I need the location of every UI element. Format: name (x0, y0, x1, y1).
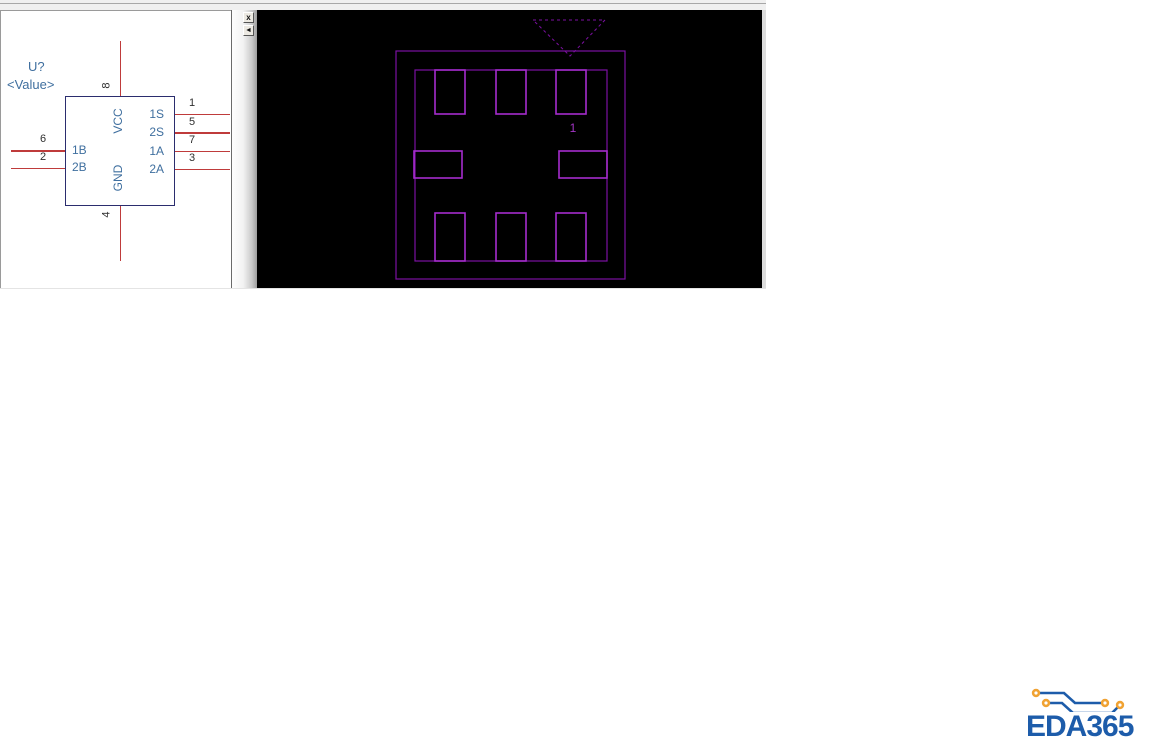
toolbar-divider (0, 3, 766, 4)
pin-number-6: 6 (35, 133, 51, 146)
pin-name-1b: 1B (72, 144, 87, 157)
footprint-drawing: 1 (257, 10, 762, 288)
pin-name-2s: 2S (139, 126, 164, 139)
pin-number-1: 1 (184, 97, 200, 110)
pin-number-8: 8 (101, 79, 114, 93)
logo-circuit-graphic (1026, 678, 1152, 712)
pin-name-gnd: GND (112, 158, 126, 198)
logo-via-1-hole (1034, 691, 1037, 694)
chevron-left-icon[interactable]: ◄ (243, 25, 254, 36)
top-toolbar-edge (0, 0, 766, 10)
eda365-logo: EDA365 (1026, 678, 1152, 754)
pin-number-4: 4 (101, 208, 114, 222)
pin-number-7: 7 (184, 134, 200, 147)
logo-via-4-hole (1118, 703, 1121, 706)
designator-label: U? (28, 60, 45, 74)
value-label: <Value> (7, 78, 54, 92)
app-canvas: U? <Value> 8 4 6 2 1 5 7 3 VCC GND 1B 2B… (0, 0, 1152, 754)
pad1-number-label: 1 (570, 121, 577, 135)
pad-top-3[interactable] (556, 70, 586, 114)
pin-name-vcc: VCC (112, 101, 126, 141)
schematic-preview-panel[interactable]: U? <Value> 8 4 6 2 1 5 7 3 VCC GND 1B 2B… (0, 10, 231, 288)
pin-number-3: 3 (184, 152, 200, 165)
pad-bottom-3[interactable] (556, 213, 586, 261)
logo-via-2-hole (1044, 701, 1047, 704)
panel-right-edge (762, 10, 766, 288)
pin-number-5: 5 (184, 116, 200, 129)
pad-middle-left[interactable] (414, 151, 462, 178)
logo-via-3-hole (1103, 701, 1106, 704)
logo-wordmark: EDA365 (1026, 712, 1133, 742)
pin-wire-4 (120, 206, 122, 261)
pin-wire-3 (175, 169, 230, 171)
footprint-preview-panel[interactable]: 1 (257, 10, 762, 288)
pin-name-1s: 1S (139, 108, 164, 121)
close-icon[interactable]: x (243, 12, 254, 23)
panel-splitter[interactable]: x ◄ (231, 10, 257, 288)
pin-wire-8 (120, 41, 122, 96)
pin-name-1a: 1A (139, 145, 164, 158)
pad-bottom-2[interactable] (496, 213, 526, 261)
pin-wire-2 (11, 168, 65, 170)
pad-middle-right[interactable] (559, 151, 607, 178)
panel-bottom-edge (0, 288, 766, 289)
pad-bottom-1[interactable] (435, 213, 465, 261)
footprint-courtyard-outline (396, 51, 625, 279)
pad-top-2[interactable] (496, 70, 526, 114)
pin-name-2b: 2B (72, 161, 87, 174)
footprint-body-outline (415, 70, 607, 261)
pin-number-2: 2 (35, 151, 51, 164)
pad-top-1[interactable] (435, 70, 465, 114)
pin-name-2a: 2A (139, 163, 164, 176)
